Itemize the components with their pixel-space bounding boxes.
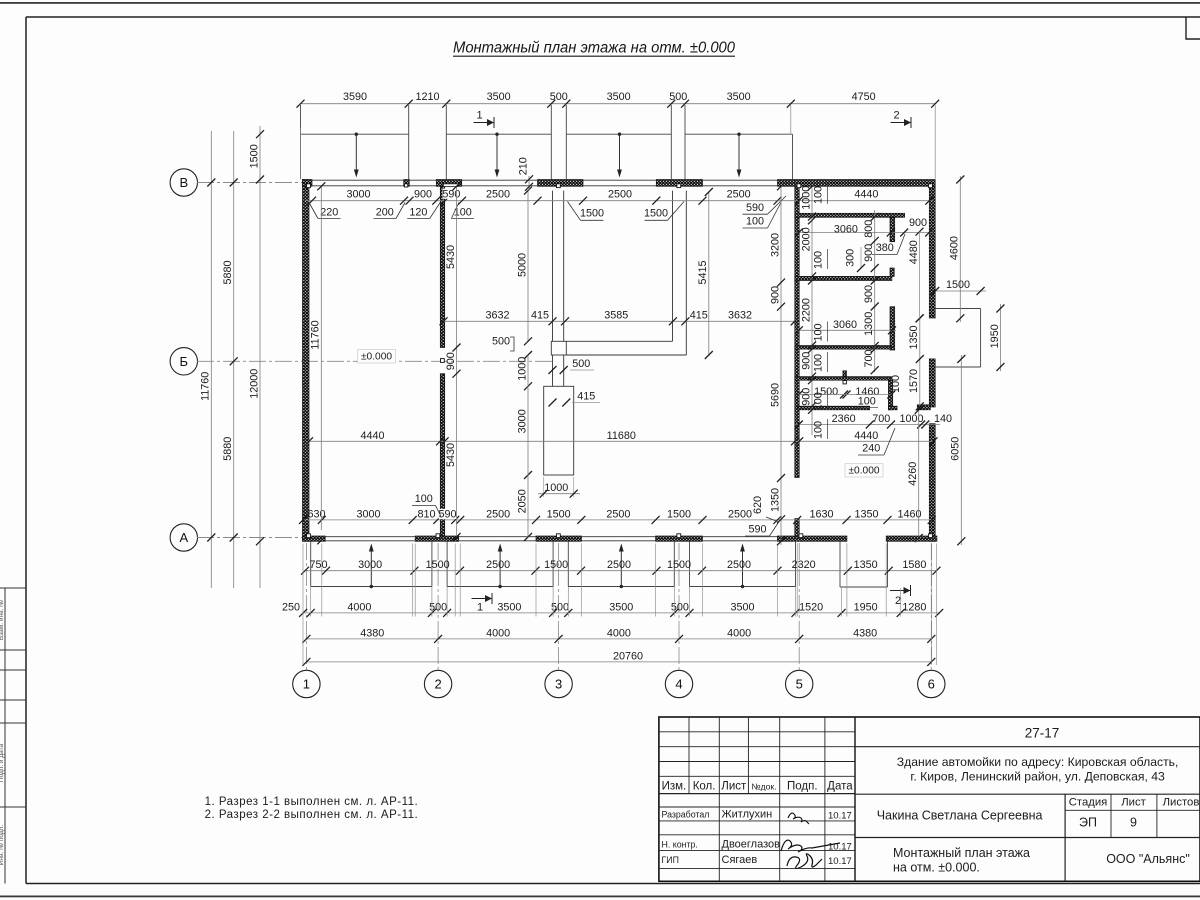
svg-text:1500: 1500: [644, 208, 668, 220]
svg-text:1000: 1000: [800, 186, 812, 210]
svg-text:3632: 3632: [485, 310, 509, 322]
svg-text:1: 1: [477, 602, 483, 614]
svg-text:5: 5: [796, 677, 803, 692]
svg-text:1000: 1000: [544, 482, 568, 494]
svg-text:3500: 3500: [487, 91, 511, 103]
svg-text:1500: 1500: [544, 559, 568, 571]
svg-text:2500: 2500: [728, 509, 752, 521]
svg-text:100: 100: [746, 216, 764, 228]
svg-text:3000: 3000: [516, 409, 528, 433]
svg-text:500: 500: [492, 336, 510, 348]
svg-text:9: 9: [1130, 816, 1137, 830]
svg-text:210: 210: [517, 157, 529, 175]
svg-text:5690: 5690: [769, 383, 781, 407]
svg-text:380: 380: [876, 242, 894, 254]
svg-text:750: 750: [309, 559, 327, 571]
svg-text:4000: 4000: [727, 627, 751, 639]
svg-text:Инв. № подл.: Инв. № подл.: [0, 825, 5, 866]
svg-text:900: 900: [800, 352, 812, 370]
svg-text:3500: 3500: [607, 91, 631, 103]
svg-text:4000: 4000: [486, 627, 510, 639]
svg-text:1500: 1500: [667, 559, 691, 571]
svg-text:900: 900: [863, 244, 875, 262]
svg-text:3060: 3060: [834, 223, 858, 235]
svg-text:20760: 20760: [613, 650, 643, 662]
svg-text:100: 100: [812, 392, 824, 410]
svg-text:2500: 2500: [727, 559, 751, 571]
svg-text:27-17: 27-17: [1025, 725, 1060, 740]
svg-text:2500: 2500: [486, 559, 510, 571]
svg-text:1350: 1350: [769, 488, 781, 512]
svg-text:1950: 1950: [989, 324, 1001, 348]
svg-text:2500: 2500: [486, 509, 510, 521]
svg-text:4440: 4440: [360, 430, 384, 442]
svg-text:3000: 3000: [346, 188, 370, 200]
svg-text:1350: 1350: [908, 325, 920, 349]
svg-text:2: 2: [895, 595, 901, 607]
svg-text:1950: 1950: [854, 601, 878, 613]
svg-text:590: 590: [748, 524, 766, 536]
svg-text:240: 240: [862, 443, 880, 455]
svg-text:900: 900: [863, 285, 875, 303]
svg-text:1500: 1500: [547, 509, 571, 521]
svg-text:5415: 5415: [697, 260, 709, 284]
svg-text:500: 500: [550, 91, 568, 103]
svg-text:1570: 1570: [908, 369, 920, 393]
svg-text:Двоеглазов: Двоеглазов: [722, 839, 781, 851]
svg-text:500: 500: [669, 91, 687, 103]
svg-text:100: 100: [812, 251, 824, 269]
svg-text:5880: 5880: [222, 437, 234, 461]
svg-text:2500: 2500: [608, 188, 632, 200]
svg-text:1300: 1300: [863, 312, 875, 336]
svg-text:900: 900: [445, 352, 457, 370]
svg-text:4000: 4000: [347, 601, 371, 613]
svg-text:2360: 2360: [832, 413, 856, 425]
svg-text:1500: 1500: [426, 559, 450, 571]
svg-text:1: 1: [476, 110, 482, 122]
svg-text:3000: 3000: [356, 509, 380, 521]
svg-text:А: А: [179, 530, 188, 545]
svg-text:11760: 11760: [310, 320, 322, 349]
svg-text:1500: 1500: [580, 208, 604, 220]
svg-text:900: 900: [769, 286, 781, 304]
svg-text:1500: 1500: [946, 279, 970, 291]
svg-text:100: 100: [812, 323, 824, 341]
svg-text:1000: 1000: [899, 413, 923, 425]
svg-text:620: 620: [752, 496, 764, 514]
svg-text:Подп. и дата: Подп. и дата: [0, 743, 5, 782]
svg-text:1210: 1210: [415, 91, 439, 103]
svg-text:500: 500: [551, 601, 569, 613]
svg-text:900: 900: [800, 388, 812, 406]
svg-text:3500: 3500: [609, 601, 633, 613]
svg-text:Подп.: Подп.: [787, 780, 818, 792]
svg-text:1500: 1500: [248, 144, 260, 168]
svg-text:2000: 2000: [800, 227, 812, 251]
svg-text:12000: 12000: [248, 369, 260, 399]
svg-text:5430: 5430: [445, 245, 457, 269]
svg-text:1280: 1280: [902, 601, 926, 613]
svg-text:3060: 3060: [833, 319, 857, 331]
svg-text:4440: 4440: [854, 430, 878, 442]
svg-text:2500: 2500: [727, 188, 751, 200]
svg-text:415: 415: [531, 310, 549, 322]
svg-text:11760: 11760: [200, 372, 212, 401]
svg-text:200: 200: [376, 206, 394, 218]
svg-text:Монтажный план этажа на отм. ±: Монтажный план этажа на отм. ±0.000: [453, 40, 735, 57]
svg-text:Листов: Листов: [1163, 796, 1200, 808]
svg-text:1350: 1350: [854, 509, 878, 521]
svg-text:1: 1: [303, 677, 310, 692]
svg-text:500: 500: [671, 601, 689, 613]
svg-text:3500: 3500: [730, 601, 754, 613]
svg-text:220: 220: [320, 206, 338, 218]
svg-text:Стадия: Стадия: [1069, 796, 1108, 808]
svg-text:3: 3: [555, 677, 562, 692]
svg-text:1500: 1500: [667, 509, 691, 521]
svg-text:5430: 5430: [445, 443, 457, 467]
svg-text:800: 800: [863, 220, 875, 238]
svg-text:3200: 3200: [769, 233, 781, 257]
svg-text:Лист: Лист: [1121, 796, 1146, 808]
svg-text:4750: 4750: [852, 91, 876, 103]
svg-text:10.17: 10.17: [828, 811, 852, 822]
svg-text:Чакина Светлана Сергеевна: Чакина Светлана Сергеевна: [877, 809, 1043, 823]
svg-text:3500: 3500: [727, 91, 751, 103]
svg-text:6: 6: [928, 677, 935, 692]
svg-text:700: 700: [863, 349, 875, 367]
svg-text:100: 100: [890, 375, 902, 393]
svg-text:Б: Б: [180, 354, 189, 369]
svg-text:2050: 2050: [516, 489, 528, 513]
svg-text:1520: 1520: [799, 601, 823, 613]
svg-text:1000: 1000: [516, 357, 528, 381]
svg-text:6050: 6050: [950, 437, 962, 461]
svg-text:4380: 4380: [853, 627, 877, 639]
svg-text:2. Разрез 2-2 выполнен см. л.: 2. Разрез 2-2 выполнен см. л. АР-11.: [205, 809, 419, 821]
svg-text:415: 415: [690, 310, 708, 322]
svg-text:1580: 1580: [902, 559, 926, 571]
svg-text:810: 810: [417, 509, 435, 521]
svg-text:100: 100: [812, 354, 824, 372]
svg-text:3632: 3632: [728, 310, 752, 322]
svg-text:2320: 2320: [792, 559, 816, 571]
svg-text:1. Разрез 1-1 выполнен см. л.: 1. Разрез 1-1 выполнен см. л. АР-11.: [205, 796, 419, 808]
svg-text:2500: 2500: [486, 188, 510, 200]
svg-text:±0.000: ±0.000: [361, 352, 392, 363]
svg-text:3590: 3590: [343, 91, 367, 103]
svg-text:100: 100: [812, 186, 824, 204]
svg-text:140: 140: [934, 413, 952, 425]
svg-text:В: В: [179, 175, 188, 190]
svg-text:10.17: 10.17: [828, 856, 852, 867]
svg-text:300: 300: [845, 249, 857, 267]
svg-text:2500: 2500: [606, 509, 630, 521]
svg-text:2500: 2500: [607, 559, 631, 571]
svg-text:590: 590: [438, 509, 456, 521]
svg-text:Дата: Дата: [827, 780, 853, 792]
svg-text:г. Киров, Ленинский район, ул.: г. Киров, Ленинский район, ул. Деповская…: [910, 769, 1165, 783]
svg-text:на отм. ±0.000.: на отм. ±0.000.: [893, 861, 980, 875]
svg-text:4380: 4380: [360, 627, 384, 639]
svg-text:590: 590: [746, 202, 764, 214]
svg-text:3000: 3000: [358, 559, 382, 571]
svg-text:4260: 4260: [907, 462, 919, 486]
svg-text:1630: 1630: [809, 509, 833, 521]
svg-text:Взам. инв. №: Взам. инв. №: [0, 600, 5, 640]
svg-text:100: 100: [858, 395, 876, 407]
svg-text:Житлухин: Житлухин: [722, 809, 773, 821]
svg-text:100: 100: [415, 493, 433, 505]
svg-text:±0.000: ±0.000: [848, 466, 879, 477]
svg-text:700: 700: [872, 413, 890, 425]
svg-text:Здание автомойки по адресу: Ки: Здание автомойки по адресу: Кировская об…: [897, 755, 1179, 769]
svg-text:Разработал: Разработал: [662, 810, 710, 820]
svg-text:Н. контр.: Н. контр.: [662, 840, 698, 850]
svg-text:4600: 4600: [949, 236, 961, 260]
svg-text:2: 2: [434, 677, 441, 692]
svg-text:Кол.: Кол.: [693, 780, 716, 792]
svg-text:2200: 2200: [800, 298, 812, 322]
svg-text:ЭП: ЭП: [1079, 816, 1097, 830]
svg-text:Лист: Лист: [721, 780, 747, 792]
svg-text:4000: 4000: [607, 627, 631, 639]
svg-text:5880: 5880: [222, 260, 234, 284]
svg-text:ООО "Альянс": ООО "Альянс": [1106, 852, 1190, 866]
svg-text:630: 630: [307, 509, 325, 521]
svg-text:415: 415: [577, 391, 595, 403]
svg-text:№док.: №док.: [751, 781, 776, 791]
svg-text:100: 100: [812, 421, 824, 439]
svg-text:3500: 3500: [497, 601, 521, 613]
svg-text:ГИП: ГИП: [662, 855, 679, 865]
svg-text:5000: 5000: [516, 253, 528, 277]
svg-text:Сягаев: Сягаев: [722, 854, 758, 866]
svg-text:4440: 4440: [854, 189, 878, 201]
svg-text:590: 590: [442, 188, 460, 200]
svg-text:500: 500: [572, 358, 590, 370]
svg-text:Изм.: Изм.: [662, 780, 687, 792]
svg-text:11680: 11680: [607, 430, 636, 442]
svg-text:4480: 4480: [908, 240, 920, 264]
svg-text:1350: 1350: [854, 559, 878, 571]
svg-text:1460: 1460: [897, 509, 921, 521]
svg-text:Монтажный план этажа: Монтажный план этажа: [893, 846, 1030, 860]
svg-text:3585: 3585: [604, 310, 628, 322]
svg-text:250: 250: [282, 601, 300, 613]
svg-text:4: 4: [675, 677, 682, 692]
svg-text:900: 900: [909, 217, 927, 229]
svg-text:2: 2: [893, 110, 899, 122]
svg-text:120: 120: [409, 206, 427, 218]
svg-text:900: 900: [414, 188, 432, 200]
